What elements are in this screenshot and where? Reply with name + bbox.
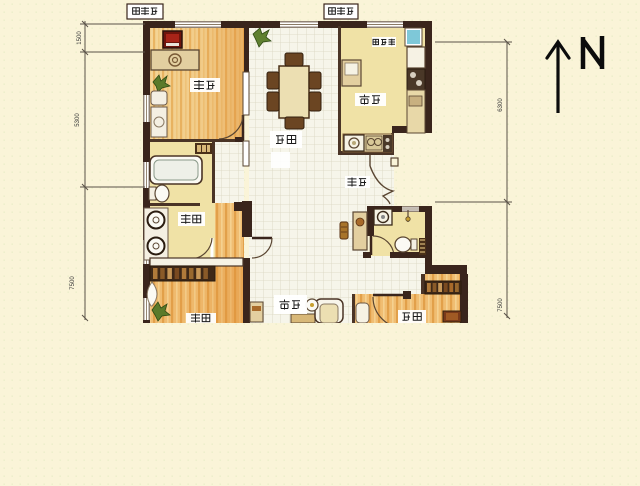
svg-text:1500: 1500 <box>77 31 83 45</box>
svg-text:5300: 5300 <box>75 113 81 127</box>
svg-text:6300: 6300 <box>498 98 504 112</box>
svg-text:7500: 7500 <box>70 276 76 290</box>
svg-text:7500: 7500 <box>498 298 504 312</box>
